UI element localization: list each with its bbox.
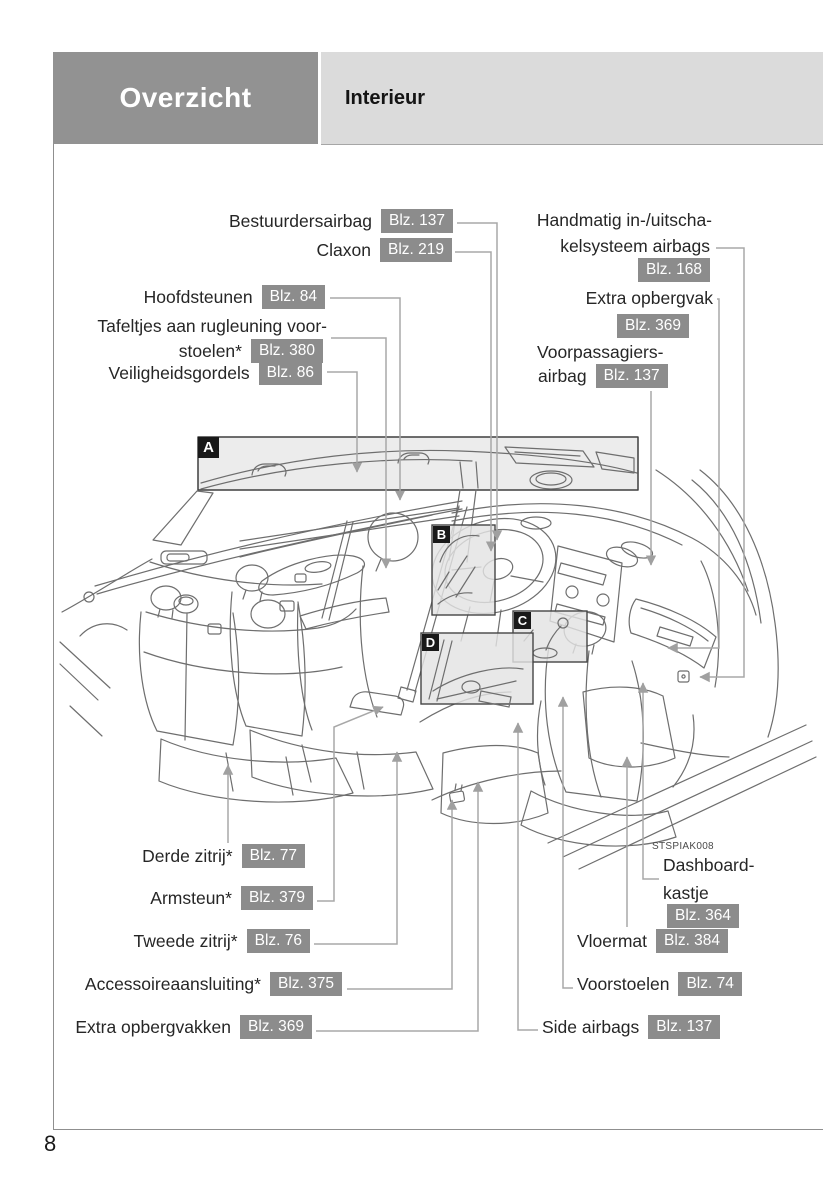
label-veiligheidsgordels: Veiligheidsgordels Blz. 86 (109, 361, 322, 385)
label-extra-opbergvak-badge: Blz. 369 (617, 314, 689, 338)
label-tweede-zitrij: Tweede zitrij* Blz. 76 (134, 929, 310, 953)
label-armsteun: Armsteun* Blz. 379 (150, 886, 313, 910)
page-badge: Blz. 379 (241, 886, 313, 910)
label-text: Derde zitrij* (142, 844, 232, 868)
label-text: Hoofdsteunen (144, 285, 253, 309)
region-badge-b: B (433, 526, 450, 543)
page-badge: Blz. 219 (380, 238, 452, 262)
page-badge: Blz. 384 (656, 929, 728, 953)
label-text: Vloermat (577, 929, 647, 953)
label-accessoireaansluiting: Accessoireaansluiting* Blz. 375 (85, 972, 342, 996)
label-text: kastje (663, 881, 709, 905)
label-text: Claxon (317, 238, 371, 262)
label-text: Extra opbergvak (586, 286, 713, 310)
page-badge: Blz. 76 (247, 929, 310, 953)
page-badge: Blz. 364 (667, 904, 739, 928)
label-voorpassagiers-line2: airbag Blz. 137 (538, 364, 668, 388)
label-text: Tweede zitrij* (134, 929, 238, 953)
label-dashboardkastje-line1: Dashboard- (663, 853, 754, 877)
page-badge: Blz. 77 (242, 844, 305, 868)
label-bestuurdersairbag: Bestuurdersairbag Blz. 137 (229, 209, 453, 233)
label-text: Armsteun* (150, 886, 232, 910)
label-handmatig-line2: kelsysteem airbags (560, 234, 710, 258)
label-text: stoelen* (179, 339, 242, 363)
figure-code: STSPIAK008 (652, 841, 714, 852)
label-voorpassagiers-line1: Voorpassagiers- (537, 340, 663, 364)
page-badge: Blz. 168 (638, 258, 710, 282)
label-vloermat: Vloermat Blz. 384 (577, 929, 728, 953)
label-text: kelsysteem airbags (560, 234, 710, 258)
label-tafeltjes-line1: Tafeltjes aan rugleuning voor- (97, 314, 327, 338)
label-text: airbag (538, 364, 587, 388)
page-badge: Blz. 74 (678, 972, 741, 996)
region-badge-a: A (198, 437, 219, 458)
page-badge: Blz. 369 (240, 1015, 312, 1039)
label-dashboardkastje-line2: kastje (663, 881, 709, 905)
label-extra-opbergvak: Extra opbergvak (586, 286, 713, 310)
label-text: Voorstoelen (577, 972, 669, 996)
label-side-airbags: Side airbags Blz. 137 (542, 1015, 720, 1039)
label-dashboardkastje-badge: Blz. 364 (667, 904, 739, 928)
page-badge: Blz. 137 (648, 1015, 720, 1039)
label-text: Voorpassagiers- (537, 340, 663, 364)
label-text: Dashboard- (663, 853, 754, 877)
label-text: Extra opbergvakken (75, 1015, 231, 1039)
roof-strip-region-a (198, 437, 638, 490)
page-badge: Blz. 375 (270, 972, 342, 996)
page-badge: Blz. 137 (381, 209, 453, 233)
region-badge-c: C (514, 612, 531, 629)
label-text: Accessoireaansluiting* (85, 972, 261, 996)
label-text: Bestuurdersairbag (229, 209, 372, 233)
label-handmatig-line1: Handmatig in-/uitscha- (537, 208, 712, 232)
label-text: Side airbags (542, 1015, 639, 1039)
page-number: 8 (44, 1131, 56, 1157)
label-text: Handmatig in-/uitscha- (537, 208, 712, 232)
label-text: Tafeltjes aan rugleuning voor- (97, 314, 327, 338)
label-tafeltjes-line2: stoelen* Blz. 380 (179, 339, 323, 363)
label-claxon: Claxon Blz. 219 (317, 238, 453, 262)
page-badge: Blz. 84 (262, 285, 325, 309)
region-badge-d: D (422, 634, 439, 651)
page-badge: Blz. 86 (259, 361, 322, 385)
page-badge: Blz. 137 (596, 364, 668, 388)
label-handmatig-badge: Blz. 168 (638, 258, 710, 282)
label-hoofdsteunen: Hoofdsteunen Blz. 84 (144, 285, 325, 309)
label-voorstoelen: Voorstoelen Blz. 74 (577, 972, 742, 996)
label-text: Veiligheidsgordels (109, 361, 250, 385)
page-badge: Blz. 380 (251, 339, 323, 363)
interior-diagram (0, 0, 823, 1191)
label-extra-opbergvakken: Extra opbergvakken Blz. 369 (75, 1015, 312, 1039)
label-derde-zitrij: Derde zitrij* Blz. 77 (142, 844, 305, 868)
page-badge: Blz. 369 (617, 314, 689, 338)
